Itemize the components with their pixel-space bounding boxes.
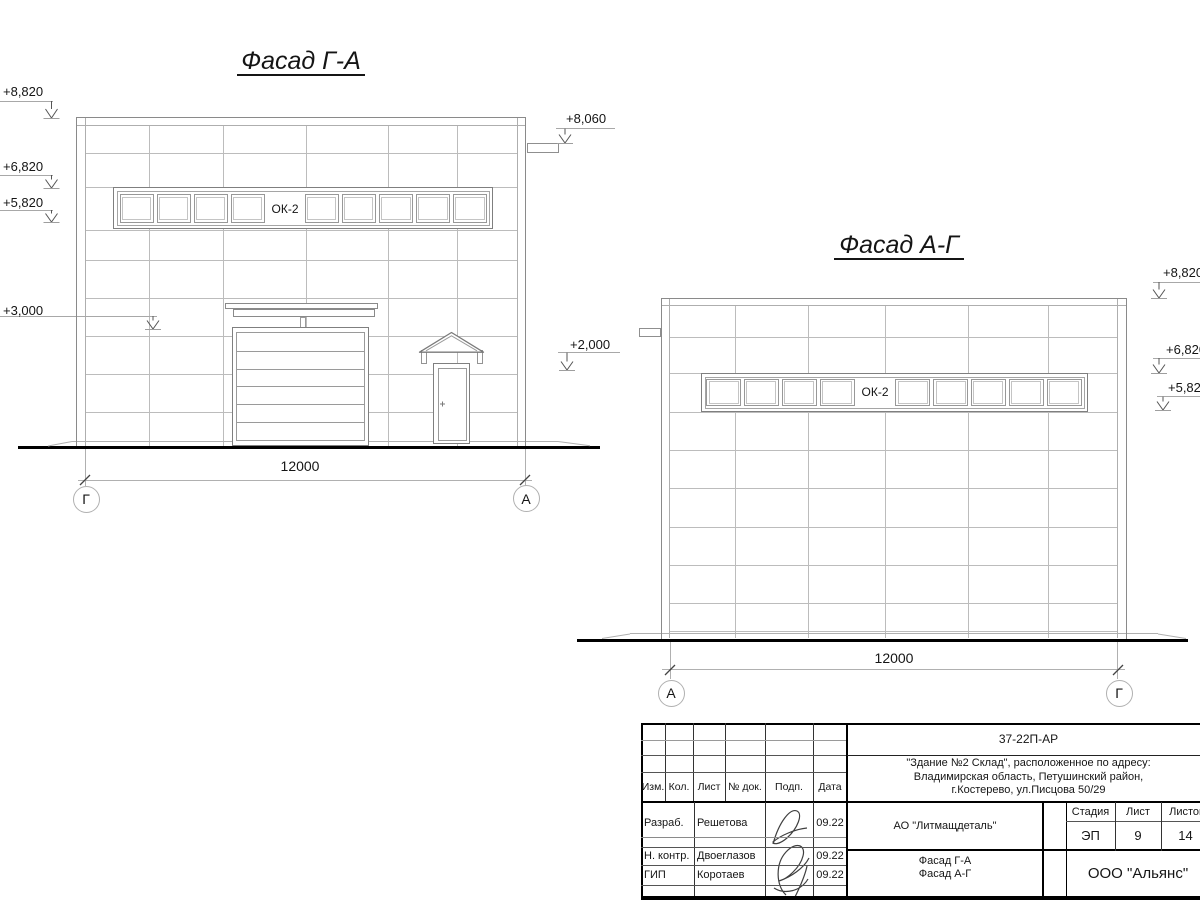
window-pane <box>1047 379 1082 407</box>
company-name: ООО "Альянс" <box>1066 850 1200 896</box>
col-header-izm: Изм. <box>641 772 665 801</box>
facade-ga-dimension-text: 12000 <box>272 458 328 474</box>
elevation-mark-label: +8,060 <box>566 112 606 125</box>
gate-slat-line <box>237 351 364 352</box>
window-pane-inner <box>196 197 225 221</box>
facade-ga-ground-line <box>18 446 600 449</box>
facade-ga-sectional-gate <box>232 327 369 446</box>
window-pane <box>416 194 450 223</box>
window-pane <box>706 379 741 407</box>
facade-ag-extension-line-left <box>670 642 671 679</box>
col-header-data: Дата <box>813 772 847 801</box>
window-pane-inner <box>1011 381 1041 404</box>
row-name: Двоеглазов <box>697 847 763 865</box>
facade-ag-extension-line-right <box>1117 642 1118 679</box>
address-line: "Здание №2 Склад", расположенное по адре… <box>847 757 1200 771</box>
titleblock-row-line <box>641 740 846 741</box>
gate-slat-line <box>237 422 364 423</box>
facade-ga-title: Фасад Г-А <box>237 48 365 76</box>
elevation-shelf <box>556 128 615 129</box>
facade-ga-window-mark-label: ОК-2 <box>261 194 309 224</box>
address-line: Владимирская область, Петушинский район, <box>847 771 1200 785</box>
elevation-mark-label: +8,820 <box>3 85 43 98</box>
window-pane <box>895 379 930 407</box>
customer-name: АО "Литмащдеталь" <box>847 802 1043 850</box>
row-name: Решетова <box>697 807 763 839</box>
window-pane-inner <box>784 381 814 404</box>
sheet-header: Лист <box>1115 802 1161 821</box>
elevation-shelf <box>1153 358 1200 359</box>
architectural-drawing-sheet: Фасад Г-А ОК-2 12000 Г А +8,820 +6,820 +… <box>0 0 1200 900</box>
elevation-mark-label: +8,820 <box>1163 266 1200 279</box>
window-pane-inner <box>307 197 336 221</box>
col-header-kol: Кол. <box>665 772 693 801</box>
sheet-title-line: Фасад Г-А <box>847 855 1043 868</box>
window-pane-inner <box>898 381 928 404</box>
elevation-shelf <box>1157 396 1200 397</box>
titleblock-col-line <box>765 802 766 896</box>
gate-slat-line <box>237 386 364 387</box>
row-role: Разраб. <box>644 807 694 839</box>
facade-ag-parapet-scupper <box>639 328 662 337</box>
window-pane <box>744 379 779 407</box>
elevation-mark-label: +6,820 <box>1166 343 1200 356</box>
titleblock-line-h755-right <box>847 755 1200 756</box>
window-pane-inner <box>936 381 966 404</box>
sheet-value: 9 <box>1115 821 1161 850</box>
sheet-title: Фасад Г-А Фасад А-Г <box>847 855 1043 881</box>
facade-ag-axis-mark-a: А <box>658 680 685 707</box>
elevation-shelf <box>0 175 53 176</box>
row-date: 09.22 <box>813 807 847 839</box>
facade-ag-building-outline <box>661 298 1128 639</box>
window-pane-inner <box>746 381 776 404</box>
facade-ga-parapet-scupper <box>527 143 559 153</box>
window-pane-inner <box>973 381 1003 404</box>
window-pane-inner <box>455 197 484 221</box>
window-pane-inner <box>381 197 410 221</box>
axis-letter: Г <box>82 491 90 507</box>
facade-ga-entrance-door <box>433 363 470 444</box>
titleblock-row-line <box>641 755 846 756</box>
row-role: ГИП <box>644 865 696 885</box>
facade-ga-axis-mark-a: А <box>513 485 540 512</box>
facade-ag-axis-mark-g: Г <box>1106 680 1133 707</box>
elevation-mark-label: +5,820 <box>3 196 43 209</box>
window-pane <box>453 194 487 223</box>
col-header-list: Лист <box>693 772 725 801</box>
row-date: 09.22 <box>813 865 847 885</box>
facade-ag-dimension-text: 12000 <box>866 650 922 666</box>
window-pane <box>782 379 817 407</box>
facade-ga-canopy-support <box>300 317 306 328</box>
facade-ga-dimension-line <box>78 480 532 481</box>
sheet-title-line: Фасад А-Г <box>847 868 1043 881</box>
sheets-total-header: Листов <box>1161 802 1200 821</box>
window-pane-inner <box>709 381 739 404</box>
window-pane-inner <box>822 381 852 404</box>
stage-header: Стадия <box>1066 802 1115 821</box>
axis-letter: Г <box>1115 685 1123 701</box>
elevation-mark-label: +6,820 <box>3 160 43 173</box>
col-header-ndok: № док. <box>725 772 765 801</box>
window-pane <box>305 194 339 223</box>
titleblock-border-left <box>641 723 643 898</box>
elevation-mark-label: +3,000 <box>3 304 43 317</box>
signature-korotaev-dvoeglazov <box>774 845 809 899</box>
window-pane <box>231 194 265 223</box>
window-pane <box>820 379 855 407</box>
facade-ga-porch-post-right <box>477 350 483 364</box>
window-pane <box>971 379 1006 407</box>
elevation-shelf <box>558 352 620 353</box>
window-pane <box>157 194 191 223</box>
elevation-shelf <box>0 101 53 102</box>
facade-ga-door-leaf <box>438 368 467 441</box>
window-pane-inner <box>418 197 447 221</box>
facade-ag-window-mark-label: ОК-2 <box>853 376 897 408</box>
window-pane-inner <box>122 197 151 221</box>
elevation-shelf <box>1153 282 1200 283</box>
facade-ag-title: Фасад А-Г <box>834 232 964 260</box>
facade-ag-dimension-line <box>662 669 1125 670</box>
signature-reshetova <box>773 811 807 844</box>
elevation-mark-label: +5,820 <box>1168 381 1200 394</box>
window-pane <box>379 194 413 223</box>
facade-ga-axis-mark-g: Г <box>73 486 100 513</box>
gate-slat-line <box>237 404 364 405</box>
doc-code: 37-22П-АР <box>847 724 1200 754</box>
window-pane-inner <box>1049 381 1079 404</box>
window-pane <box>933 379 968 407</box>
sheets-total-value: 14 <box>1161 821 1200 850</box>
project-address: "Здание №2 Склад", расположенное по адре… <box>847 757 1200 801</box>
address-line: г.Костерево, ул.Писцова 50/29 <box>847 784 1200 798</box>
window-pane <box>120 194 154 223</box>
window-pane-inner <box>159 197 188 221</box>
col-header-podp: Подп. <box>765 772 813 801</box>
facade-ga-gate-leaf <box>236 332 365 441</box>
titleblock-border-bottom <box>641 896 1200 900</box>
axis-letter: А <box>666 685 675 701</box>
facade-ga-porch-post-left <box>421 350 427 364</box>
row-name: Коротаев <box>697 865 763 885</box>
window-pane <box>1009 379 1044 407</box>
window-pane <box>194 194 228 223</box>
window-pane <box>342 194 376 223</box>
window-pane-inner <box>233 197 262 221</box>
row-role: Н. контр. <box>644 847 696 865</box>
window-pane-inner <box>344 197 373 221</box>
stage-value: ЭП <box>1066 821 1115 850</box>
row-date: 09.22 <box>813 847 847 865</box>
elevation-mark-label: +2,000 <box>570 338 610 351</box>
facade-ag-ground-line <box>577 639 1188 642</box>
gate-slat-line <box>237 369 364 370</box>
axis-letter: А <box>521 491 530 507</box>
